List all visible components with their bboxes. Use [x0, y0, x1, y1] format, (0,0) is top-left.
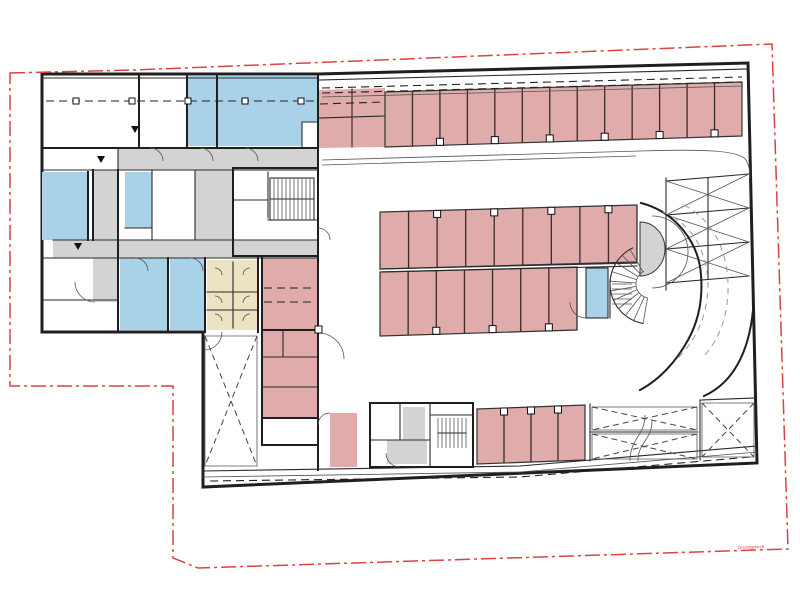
corridor-main-upper — [118, 148, 318, 170]
room-blue — [125, 172, 152, 228]
corridor-vertical-left — [93, 170, 118, 302]
room-blue-garage — [586, 268, 608, 318]
floor-plan-canvas: Grundgrenze — [0, 0, 800, 600]
storage-rooms-pink — [262, 330, 318, 418]
boundary-label-text: Grundgrenze — [738, 544, 765, 550]
ramp-curves — [640, 203, 753, 396]
void-cross-left — [205, 336, 257, 466]
bottom-right-walls — [590, 398, 755, 461]
room-blue — [42, 172, 88, 240]
main-stair — [270, 178, 314, 220]
parking-row-mid-lower — [380, 267, 577, 336]
room-blue — [120, 258, 168, 330]
room-blue — [187, 76, 217, 146]
parking-column-upper — [262, 258, 318, 330]
parking-row-mid-upper — [380, 205, 637, 269]
floor-plan-drawing: Grundgrenze — [0, 0, 800, 600]
parking-row-top — [385, 82, 742, 147]
parking-row-bottom — [477, 405, 585, 464]
room-inset — [302, 122, 318, 146]
ramp-bumper — [640, 222, 665, 276]
ramp-room-upper — [592, 407, 697, 430]
parking-slab — [330, 413, 357, 467]
storage-lockers — [207, 260, 258, 330]
corridor-vertical-mid — [195, 170, 233, 240]
room-blue — [170, 258, 205, 330]
